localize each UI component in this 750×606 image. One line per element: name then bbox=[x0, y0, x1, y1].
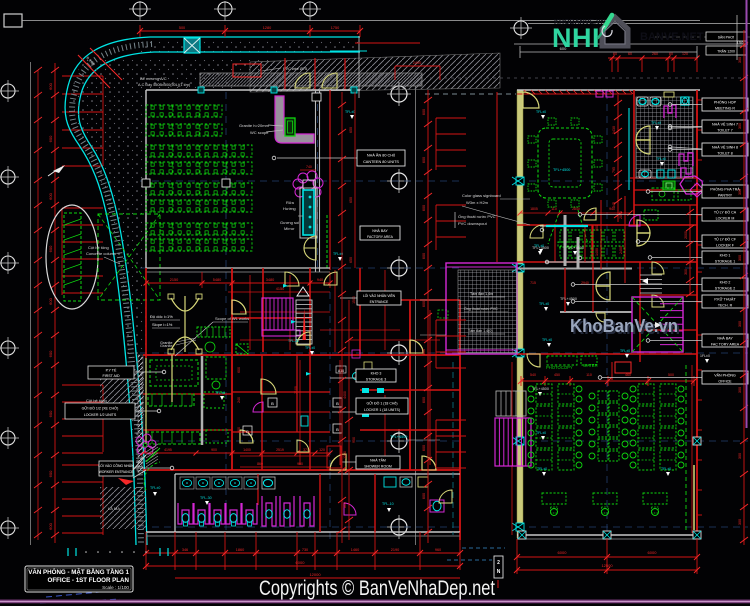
svg-text:Color glass signboard: Color glass signboard bbox=[462, 193, 501, 198]
svg-text:2840: 2840 bbox=[572, 207, 580, 211]
svg-text:BANVE.NET: BANVE.NET bbox=[640, 31, 704, 43]
svg-text:6000: 6000 bbox=[648, 550, 658, 555]
svg-text:NHÀ TẮM: NHÀ TẮM bbox=[370, 458, 386, 463]
svg-text:TFL±0: TFL±0 bbox=[661, 467, 671, 471]
svg-text:1FL±0: 1FL±0 bbox=[700, 354, 710, 358]
svg-text:B: B bbox=[336, 401, 339, 406]
svg-text:940: 940 bbox=[609, 207, 615, 211]
svg-text:2190: 2190 bbox=[391, 548, 399, 552]
svg-text:TFL-30: TFL-30 bbox=[200, 496, 212, 500]
svg-text:Hướng: Hướng bbox=[283, 206, 296, 211]
svg-text:Độ dốc i=1%: Độ dốc i=1% bbox=[150, 314, 173, 319]
svg-text:TFL±0: TFL±0 bbox=[539, 302, 549, 306]
svg-text:2850: 2850 bbox=[619, 211, 623, 219]
svg-text:1860: 1860 bbox=[236, 548, 244, 552]
svg-text:600: 600 bbox=[422, 445, 426, 451]
svg-text:LOCKER 1 (18 UNITS): LOCKER 1 (18 UNITS) bbox=[364, 408, 400, 412]
svg-text:Granite: Granite bbox=[160, 344, 172, 348]
svg-text:12500: 12500 bbox=[601, 563, 613, 568]
svg-text:Concrete column: Concrete column bbox=[86, 251, 116, 256]
svg-text:6000: 6000 bbox=[558, 550, 568, 555]
svg-text:FACTORY AREA: FACTORY AREA bbox=[367, 235, 394, 239]
svg-text:Bể mương A/C: Bể mương A/C bbox=[140, 76, 167, 81]
svg-text:TFL+4500: TFL+4500 bbox=[532, 387, 549, 391]
svg-text:TFL±0: TFL±0 bbox=[537, 467, 547, 471]
svg-text:TFL±0: TFL±0 bbox=[651, 121, 661, 125]
svg-text:MEETING R: MEETING R bbox=[715, 107, 735, 111]
svg-text:900: 900 bbox=[211, 448, 217, 452]
svg-text:1430: 1430 bbox=[612, 126, 616, 134]
svg-text:WC scope: WC scope bbox=[250, 130, 269, 135]
svg-text:Mirror: Mirror bbox=[284, 226, 295, 231]
svg-text:240: 240 bbox=[237, 397, 241, 403]
svg-text:KHO 1: KHO 1 bbox=[720, 254, 731, 258]
svg-text:4400: 4400 bbox=[343, 391, 347, 399]
svg-text:795: 795 bbox=[612, 167, 616, 173]
svg-text:B: B bbox=[271, 401, 274, 406]
svg-text:346: 346 bbox=[182, 548, 188, 552]
svg-text:1280: 1280 bbox=[263, 26, 271, 30]
svg-text:600: 600 bbox=[422, 349, 426, 355]
svg-text:1750: 1750 bbox=[331, 26, 339, 30]
svg-text:STORAGE 2: STORAGE 2 bbox=[715, 287, 736, 291]
svg-text:Cột bê tông: Cột bê tông bbox=[86, 398, 107, 403]
svg-text:TFL±0: TFL±0 bbox=[150, 486, 160, 490]
svg-text:KHO 2: KHO 2 bbox=[720, 281, 731, 285]
svg-text:PANTRY: PANTRY bbox=[718, 194, 733, 198]
svg-text:B: B bbox=[246, 429, 249, 434]
svg-text:PVC wire Ø75: PVC wire Ø75 bbox=[283, 67, 307, 71]
svg-text:300: 300 bbox=[738, 453, 742, 459]
svg-text:600: 600 bbox=[237, 367, 241, 373]
svg-text:TOILET 7: TOILET 7 bbox=[717, 129, 732, 133]
svg-text:110: 110 bbox=[551, 207, 557, 211]
svg-text:TFL±0: TFL±0 bbox=[620, 349, 630, 353]
svg-text:600: 600 bbox=[422, 253, 426, 259]
svg-text:650: 650 bbox=[349, 127, 353, 133]
svg-text:N: N bbox=[497, 569, 501, 575]
svg-text:OFFICE: OFFICE bbox=[718, 380, 732, 384]
svg-text:TOILET 8: TOILET 8 bbox=[717, 152, 732, 156]
svg-text:650: 650 bbox=[349, 257, 353, 263]
svg-text:6000: 6000 bbox=[296, 560, 306, 565]
svg-text:4195: 4195 bbox=[164, 448, 172, 452]
svg-text:300: 300 bbox=[684, 269, 688, 275]
svg-text:LÀ MA: LÀ MA bbox=[108, 506, 120, 511]
svg-text:Granite h>20mm: Granite h>20mm bbox=[239, 123, 270, 128]
svg-text:2400: 2400 bbox=[413, 61, 421, 65]
svg-text:TFL±0: TFL±0 bbox=[534, 244, 544, 248]
svg-text:GỮI ĐỒ 1 (18 CHỗ): GỮI ĐỒ 1 (18 CHỗ) bbox=[367, 401, 398, 406]
svg-text:1805: 1805 bbox=[530, 207, 538, 211]
svg-text:2400: 2400 bbox=[619, 246, 623, 254]
svg-text:600: 600 bbox=[48, 350, 53, 357]
svg-text:P.Y TẾ: P.Y TẾ bbox=[106, 368, 117, 373]
svg-text:740: 740 bbox=[306, 165, 312, 169]
svg-text:A16: A16 bbox=[338, 369, 344, 373]
svg-text:TFL±0: TFL±0 bbox=[656, 157, 666, 161]
svg-text:600: 600 bbox=[48, 297, 53, 304]
svg-text:300: 300 bbox=[738, 189, 742, 195]
svg-text:PHÒNG PHA TRÀ: PHÒNG PHA TRÀ bbox=[710, 187, 740, 192]
svg-text:NHÀ ĂN 80 CHỗ: NHÀ ĂN 80 CHỗ bbox=[367, 153, 395, 158]
svg-text:4150: 4150 bbox=[276, 287, 284, 291]
svg-text:NHÀ BAY: NHÀ BAY bbox=[717, 337, 733, 341]
svg-text:TỦ LY ĐỒ CF: TỦ LY ĐỒ CF bbox=[714, 237, 737, 242]
svg-text:Scope of WL works: Scope of WL works bbox=[215, 316, 249, 321]
svg-text:300: 300 bbox=[738, 387, 742, 393]
svg-text:600: 600 bbox=[48, 410, 53, 417]
svg-text:600: 600 bbox=[422, 493, 426, 499]
svg-text:LOCKER 1/2 UNITS: LOCKER 1/2 UNITS bbox=[84, 413, 117, 417]
svg-text:FAC TORY AREA: FAC TORY AREA bbox=[711, 343, 740, 347]
svg-text:PHOTOCOPY: PHOTOCOPY bbox=[546, 365, 573, 370]
svg-text:300: 300 bbox=[738, 519, 742, 525]
svg-text:Ống thoát nước PVC: Ống thoát nước PVC bbox=[464, 306, 498, 311]
svg-text:900: 900 bbox=[595, 225, 599, 231]
svg-text:TECH. R: TECH. R bbox=[718, 304, 733, 308]
svg-text:TFL±0: TFL±0 bbox=[305, 346, 315, 350]
svg-text:2519: 2519 bbox=[276, 448, 284, 452]
svg-text:Slope i=1%: Slope i=1% bbox=[152, 322, 173, 327]
svg-text:650: 650 bbox=[349, 197, 353, 203]
svg-text:120: 120 bbox=[319, 448, 325, 452]
svg-text:W3m x H2m: W3m x H2m bbox=[466, 200, 489, 205]
svg-text:730: 730 bbox=[302, 548, 308, 552]
svg-text:TFL+4500: TFL+4500 bbox=[567, 246, 584, 250]
svg-text:60: 60 bbox=[613, 52, 617, 56]
svg-text:600: 600 bbox=[422, 205, 426, 211]
svg-text:TFL+4500: TFL+4500 bbox=[553, 168, 570, 172]
svg-text:110: 110 bbox=[586, 373, 592, 377]
svg-text:TFL-10: TFL-10 bbox=[382, 502, 394, 506]
svg-text:900: 900 bbox=[297, 462, 303, 466]
svg-text:540: 540 bbox=[530, 373, 536, 377]
svg-text:500: 500 bbox=[179, 26, 185, 30]
svg-text:STORAGE 1: STORAGE 1 bbox=[715, 260, 736, 264]
svg-text:VĂN PHÒNG - MẶT BẰNG TẦNG 1: VĂN PHÒNG - MẶT BẰNG TẦNG 1 bbox=[28, 568, 129, 576]
svg-text:600: 600 bbox=[48, 245, 53, 252]
svg-text:TFL±0: TFL±0 bbox=[542, 338, 552, 342]
svg-text:600: 600 bbox=[422, 109, 426, 115]
svg-text:Ống thoát nước PVC: Ống thoát nước PVC bbox=[458, 214, 496, 219]
svg-text:P.KỮ THUẬT: P.KỮ THUẬT bbox=[714, 297, 736, 302]
svg-text:3480: 3480 bbox=[266, 278, 274, 282]
svg-text:Scale : 1/100: Scale : 1/100 bbox=[102, 585, 129, 590]
svg-text:600: 600 bbox=[48, 522, 53, 529]
svg-text:NHÀ VỆ SINH 8: NHÀ VỆ SINH 8 bbox=[712, 145, 738, 150]
svg-text:Gương soi: Gương soi bbox=[280, 220, 299, 225]
svg-text:960: 960 bbox=[435, 548, 441, 552]
svg-text:NHÀ VỆ SINH 7: NHÀ VỆ SINH 7 bbox=[712, 122, 738, 127]
svg-text:PHÒNG HỌP: PHÒNG HỌP bbox=[714, 100, 737, 105]
svg-text:60: 60 bbox=[669, 52, 673, 56]
svg-text:SHOWER ROOM: SHOWER ROOM bbox=[364, 465, 392, 469]
svg-text:940: 940 bbox=[317, 278, 323, 282]
svg-text:TFL±0: TFL±0 bbox=[345, 110, 355, 114]
svg-text:2000: 2000 bbox=[684, 231, 688, 239]
svg-text:TFL±0: TFL±0 bbox=[536, 431, 546, 435]
svg-text:260: 260 bbox=[652, 52, 658, 56]
svg-text:FIRST AID: FIRST AID bbox=[102, 374, 120, 378]
svg-text:600: 600 bbox=[422, 157, 426, 163]
svg-text:CANTEEN 80 UNITS: CANTEEN 80 UNITS bbox=[363, 160, 399, 164]
svg-text:715: 715 bbox=[530, 281, 536, 285]
svg-text:1500: 1500 bbox=[352, 296, 356, 304]
svg-text:TFL-30: TFL-30 bbox=[288, 339, 299, 343]
svg-text:600: 600 bbox=[422, 397, 426, 403]
svg-text:KHO 3: KHO 3 bbox=[371, 372, 382, 376]
svg-text:STORAGE 3: STORAGE 3 bbox=[366, 378, 387, 382]
svg-text:TRẬN 1200: TRẬN 1200 bbox=[717, 50, 735, 54]
svg-text:300: 300 bbox=[738, 123, 742, 129]
svg-text:LOCKER M: LOCKER M bbox=[716, 217, 735, 221]
svg-text:LỐI VÀO NHÂN VIÊN: LỐI VÀO NHÂN VIÊN bbox=[363, 293, 396, 298]
svg-text:460: 460 bbox=[625, 373, 631, 377]
svg-text:Tấm đan 1,4(0): Tấm đan 1,4(0) bbox=[468, 329, 493, 333]
svg-text:1200: 1200 bbox=[343, 451, 347, 459]
svg-text:Tấm đan 1,4m: Tấm đan 1,4m bbox=[470, 292, 493, 296]
svg-text:800: 800 bbox=[343, 502, 347, 508]
svg-text:KhoBanVe.vn: KhoBanVe.vn bbox=[570, 315, 678, 336]
svg-text:SÂN PHƠI: SÂN PHƠI bbox=[718, 36, 735, 40]
svg-text:5480: 5480 bbox=[213, 278, 221, 282]
svg-text:VĂN PHÒNG: VĂN PHÒNG bbox=[714, 373, 736, 378]
svg-text:TỦ LY ĐỒ CA: TỦ LY ĐỒ CA bbox=[714, 210, 737, 215]
svg-text:OFFICE - 1ST FLOOR PLAN: OFFICE - 1ST FLOOR PLAN bbox=[48, 577, 130, 584]
svg-text:2150: 2150 bbox=[170, 278, 178, 282]
svg-text:NHI: NHI bbox=[552, 23, 600, 53]
svg-text:GỮI ĐỒ 1/2 (XE CHỞ): GỮI ĐỒ 1/2 (XE CHỞ) bbox=[82, 406, 119, 411]
svg-text:300: 300 bbox=[738, 57, 742, 63]
svg-text:600: 600 bbox=[48, 470, 53, 477]
svg-text:A.C Đáy 550Bx500(50L)(1 lớp): A.C Đáy 550Bx500(50L)(1 lớp) bbox=[138, 83, 191, 87]
svg-text:120: 120 bbox=[682, 52, 688, 56]
svg-text:TFL+4500: TFL+4500 bbox=[390, 435, 407, 439]
svg-text:ENTRANCE: ENTRANCE bbox=[370, 300, 389, 304]
svg-text:WATER: WATER bbox=[583, 363, 598, 368]
svg-text:1460: 1460 bbox=[351, 548, 359, 552]
svg-text:B: B bbox=[336, 427, 339, 432]
svg-text:1400: 1400 bbox=[595, 248, 599, 256]
svg-text:TFL±0: TFL±0 bbox=[536, 110, 546, 114]
svg-text:600: 600 bbox=[48, 82, 53, 89]
svg-text:500: 500 bbox=[668, 373, 674, 377]
svg-text:600: 600 bbox=[422, 301, 426, 307]
svg-text:300: 300 bbox=[738, 255, 742, 261]
svg-text:TFL±0: TFL±0 bbox=[215, 391, 225, 395]
svg-text:60: 60 bbox=[628, 52, 632, 56]
svg-text:Cột bê tông: Cột bê tông bbox=[88, 245, 109, 250]
svg-text:300: 300 bbox=[738, 321, 742, 327]
svg-text:950: 950 bbox=[352, 437, 356, 443]
svg-text:450: 450 bbox=[554, 373, 560, 377]
svg-text:WORKER ENTRANCE: WORKER ENTRANCE bbox=[99, 470, 135, 474]
svg-text:LOCKER F: LOCKER F bbox=[716, 244, 735, 248]
svg-text:600: 600 bbox=[48, 192, 53, 199]
svg-text:2: 2 bbox=[497, 560, 500, 566]
svg-text:NHÀ BAY: NHÀ BAY bbox=[372, 229, 388, 233]
svg-text:Copyrights © BanVeNhaDep.net: Copyrights © BanVeNhaDep.net bbox=[259, 577, 495, 600]
svg-text:LỐI VÀO CÔNG NHÂN: LỐI VÀO CÔNG NHÂN bbox=[98, 463, 134, 468]
svg-text:1400: 1400 bbox=[243, 448, 251, 452]
svg-text:Rửa: Rửa bbox=[286, 200, 295, 205]
svg-text:PVC downspout: PVC downspout bbox=[458, 221, 488, 226]
svg-text:600: 600 bbox=[48, 135, 53, 142]
